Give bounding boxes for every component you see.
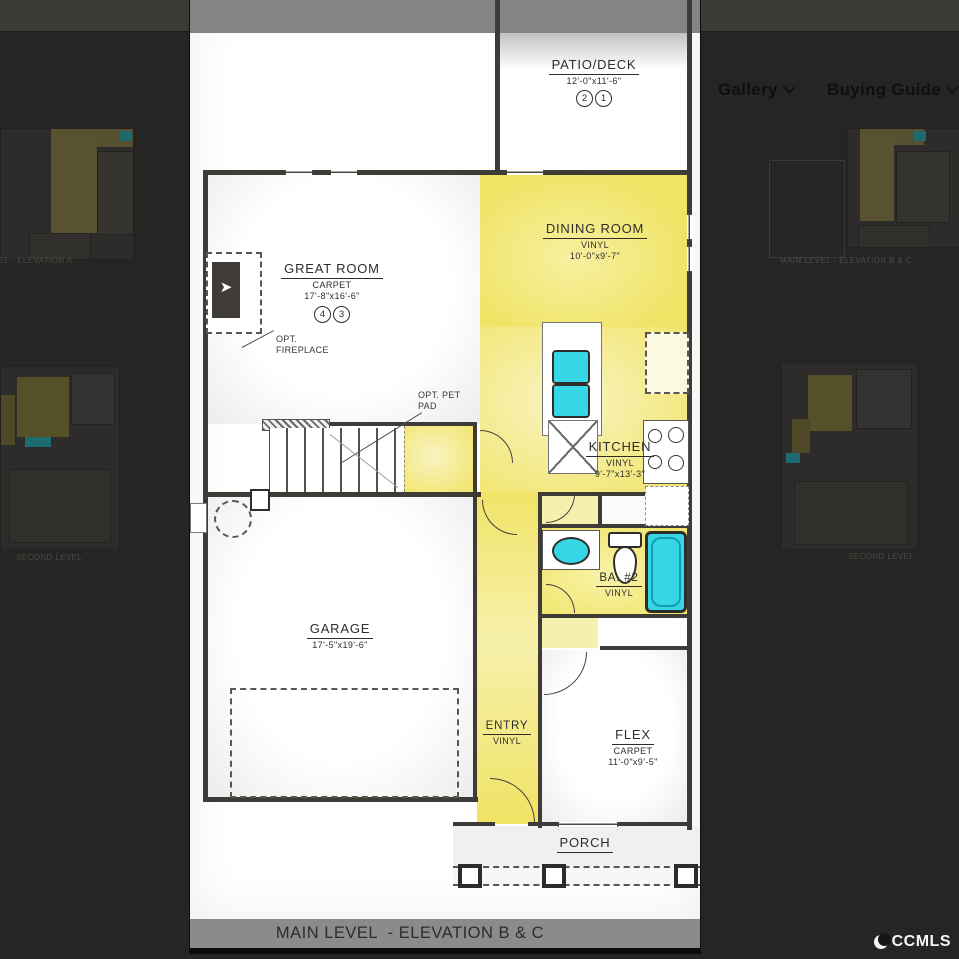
fireplace-icon: ➤ (212, 262, 240, 318)
thumb-yellow-room (17, 377, 69, 437)
room-name: PORCH (557, 836, 614, 853)
room-floor: CARPET (573, 746, 693, 756)
thumb-yellow-room (51, 129, 97, 233)
left-wall-bay (190, 503, 207, 533)
mls-watermark: CCMLS (874, 933, 951, 951)
porch-post (458, 864, 482, 888)
opt-fireplace-note: OPT. FIREPLACE (276, 334, 340, 357)
window-marker (687, 214, 692, 240)
nav-gallery-label: Gallery (718, 80, 778, 99)
room-name: KITCHEN (586, 440, 655, 457)
porch-label: PORCH (540, 834, 630, 853)
thumb-room (858, 225, 930, 248)
wall-segment (473, 422, 477, 496)
thumb-yellow-room (808, 375, 852, 431)
thumb-room (896, 151, 950, 223)
room-dims: 17'-5"x19'-6" (280, 640, 400, 650)
wall-segment (453, 822, 495, 826)
utility-box-icon (250, 489, 270, 511)
garage-door-path-dashed (230, 688, 459, 798)
thumb-yellow-room (792, 419, 810, 453)
kitchen-label: KITCHEN VINYL 9'-7"x13'-3" (575, 438, 665, 480)
wall-segment (687, 0, 692, 174)
bathroom-sink-icon (552, 537, 590, 565)
plan-tag: 2 (576, 90, 593, 107)
thumb-room (71, 373, 115, 425)
porch-post (542, 864, 566, 888)
kitchen-sink-icon (552, 384, 590, 418)
thumb-room (794, 481, 908, 545)
room-name: GARAGE (307, 622, 373, 639)
room-name: FLEX (612, 728, 654, 745)
thumb-cyan-fixture (119, 131, 131, 141)
thumb-yellow-room (860, 129, 894, 221)
room-name: GREAT ROOM (281, 262, 383, 279)
nav-buying-guide-label: Buying Guide (827, 80, 941, 99)
room-name: PATIO/DECK (549, 58, 640, 75)
thumb-room (9, 469, 111, 543)
room-floor: VINYL (478, 736, 536, 746)
porch-post (674, 864, 698, 888)
pet-pad-nook (404, 426, 474, 492)
wall-segment (600, 646, 691, 650)
counter-dashed (645, 486, 689, 526)
room-floor: VINYL (584, 588, 654, 598)
room-floor: VINYL (575, 458, 665, 468)
room-name: DINING ROOM (543, 222, 647, 239)
hall-to-flex (542, 618, 598, 648)
wall-segment (203, 170, 692, 175)
image-caption: MAIN LEVEL - ELEVATION B & C (190, 919, 700, 948)
mls-watermark-label: CCMLS (892, 933, 951, 951)
gallery-thumbnail-right-bottom[interactable] (781, 362, 918, 550)
nav-buying-guide[interactable]: Buying Guide (827, 80, 957, 100)
room-floor: CARPET (262, 280, 402, 290)
room-dims: 12'-0"x11'-6" (514, 76, 674, 86)
garage-label: GARAGE 17'-5"x19'-6" (280, 620, 400, 650)
room-name: BA. #2 (596, 572, 641, 587)
thumb-yellow-room (1, 395, 15, 445)
window-marker (687, 246, 692, 272)
thumb-caption: SECOND LEVEL (848, 552, 914, 561)
room-dims: 10'-0"x9'-7" (530, 251, 660, 261)
gallery-thumbnail-left-bottom[interactable] (0, 366, 120, 550)
plan-tag: 3 (333, 306, 350, 323)
thumb-porch-outline (769, 160, 845, 258)
patio-label: PATIO/DECK 12'-0"x11'-6" 21 (514, 56, 674, 107)
window-marker (558, 822, 618, 827)
flex-label: FLEX CARPET 11'-0"x9'-5" (573, 726, 693, 768)
thumb-room (97, 151, 134, 235)
screenshot-root: { "header": { "gallery_label": "Gallery"… (0, 0, 959, 959)
dining-label: DINING ROOM VINYL 10'-0"x9'-7" (530, 220, 660, 262)
entry-label: ENTRY VINYL (478, 716, 536, 747)
patio-door-marker (506, 170, 544, 175)
bath2-label: BA. #2 VINYL (584, 568, 654, 599)
wall-segment (473, 492, 477, 802)
pantry-cabinet-dashed (645, 332, 689, 394)
chevron-down-icon (783, 81, 796, 94)
floorplan-drawing: PATIO/DECK 12'-0"x11'-6" 21 (190, 0, 700, 919)
floorplan-image[interactable]: PATIO/DECK 12'-0"x11'-6" 21 (190, 0, 700, 953)
porch-edge-dashed (453, 866, 700, 886)
thumb-caption: MAIN LEVEL - ELEVATION A (0, 256, 108, 265)
crescent-moon-icon (874, 935, 888, 949)
wall-segment (203, 492, 481, 497)
wall-segment (495, 0, 500, 174)
room-entry (477, 492, 538, 824)
thumb-caption: SECOND LEVEL (16, 553, 82, 562)
linen-closet (602, 620, 687, 647)
wall-segment (598, 492, 602, 528)
plan-tag: 1 (595, 90, 612, 107)
thumb-cyan-fixture (914, 131, 926, 141)
wall-segment (538, 614, 691, 618)
image-top-letterbox (190, 0, 700, 33)
room-floor: VINYL (530, 240, 660, 250)
thumb-cyan-fixture (25, 437, 51, 447)
great-room-label: GREAT ROOM CARPET 17'-8"x16'-6" 43 (262, 260, 402, 323)
thumb-room (856, 369, 912, 429)
nav-gallery[interactable]: Gallery (718, 80, 794, 100)
room-dims: 9'-7"x13'-3" (575, 469, 665, 479)
water-heater-dashed-circle (214, 500, 252, 538)
kitchen-sink-icon (552, 350, 590, 384)
opt-pet-pad-note: OPT. PET PAD (418, 390, 474, 413)
gallery-thumbnail-right-top[interactable] (847, 128, 959, 248)
room-name: ENTRY (483, 720, 532, 735)
thumb-cyan-fixture (786, 453, 800, 463)
gallery-thumbnail-left-top[interactable] (0, 128, 134, 260)
room-dims: 11'-0"x9'-5" (573, 757, 693, 767)
window-marker (330, 170, 358, 175)
room-dims: 17'-8"x16'-6" (262, 291, 402, 301)
thumb-caption: MAIN LEVEL - ELEVATION B & C (780, 256, 912, 265)
chevron-down-icon (946, 81, 959, 94)
window-marker (285, 170, 313, 175)
plan-tag: 4 (314, 306, 331, 323)
